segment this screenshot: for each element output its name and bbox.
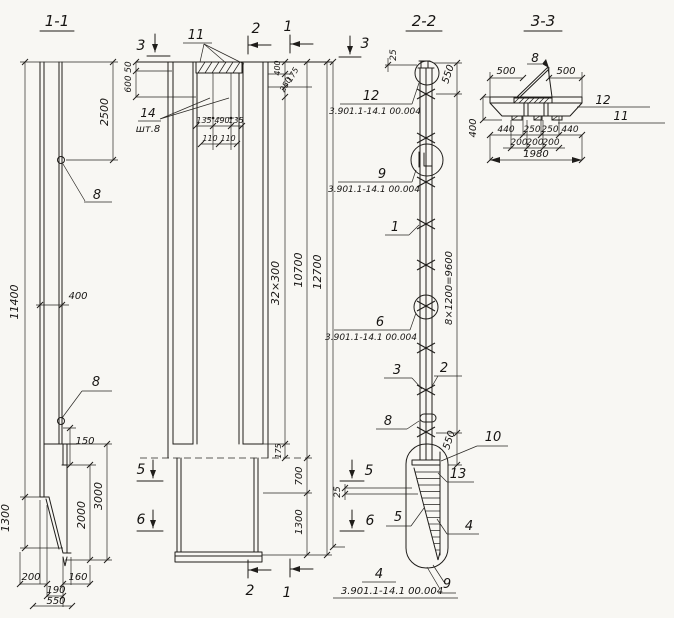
- ref-series-6-label: 3.901.1-14.1 00.004: [325, 333, 417, 343]
- dim-12700-label: 12700: [311, 255, 324, 290]
- callout-6-22-label: 6: [376, 315, 384, 330]
- callout-3-22-label: 3: [393, 363, 401, 378]
- ref-series-12-label: 3.901.1-14.1 00.004: [329, 107, 421, 117]
- callout-11-label: 11: [188, 28, 205, 43]
- dim-1300-tip-label: 1300: [0, 504, 12, 532]
- callout-2-22-label: 2: [440, 361, 448, 376]
- section-mark-3-top-label: 3: [137, 38, 146, 54]
- title-1-1-label: 1-1: [45, 12, 70, 30]
- dim-11400-label: 11400: [8, 285, 21, 320]
- dim-440-left-label: 440: [497, 125, 514, 135]
- ref-series-4-label: 3.901.1-14.1 00.004: [341, 586, 443, 597]
- callout-13-22-label: 13: [450, 467, 467, 482]
- callout-8-22-label: 8: [384, 414, 392, 429]
- callout-9-bottom-label: 9: [443, 577, 451, 592]
- dim-490-label: 490: [214, 116, 229, 125]
- dim-8x1200-label: 8×1200=9600: [444, 251, 455, 325]
- callout-4-22-label: 4: [465, 519, 473, 534]
- dim-135-right-label: 135: [228, 116, 243, 125]
- dim-110-left-label: 110: [202, 134, 217, 143]
- callout-8-33-label: 8: [531, 51, 539, 65]
- paper-background: [0, 0, 674, 618]
- dim-400-head-label: 400: [273, 60, 282, 75]
- dim-150-label: 150: [75, 436, 94, 447]
- dim-200-c-label: 200: [542, 138, 559, 148]
- dim-440-right-label: 440: [561, 125, 578, 135]
- dim-135-left-label: 135: [196, 116, 211, 125]
- title-2-2-label: 2-2: [412, 12, 437, 30]
- dim-1980-label: 1980: [523, 149, 548, 160]
- dim-500-right-label: 500: [556, 66, 575, 77]
- section-mark-2-bottom-label: 2: [246, 583, 255, 599]
- dim-700-label: 700: [294, 466, 305, 485]
- dim-200-toe-label: 200: [21, 572, 40, 583]
- callout-14-qty-label: шт.8: [136, 124, 161, 135]
- callout-12-33-label: 12: [595, 93, 610, 107]
- dim-25-head-label: 25: [389, 49, 399, 61]
- callout-5-22-label: 5: [394, 510, 402, 525]
- dim-175-toe-mid-label: 175: [274, 443, 283, 458]
- dim-200-b-label: 200: [526, 138, 543, 148]
- title-3-3-label: 3-3: [531, 12, 556, 30]
- ref-series-9-label: 3.901.1-14.1 00.004: [328, 185, 420, 195]
- section-mark-5-22-label: 5: [365, 463, 374, 479]
- dim-1300-shaft-label: 1300: [294, 509, 305, 534]
- section-mark-6-left-label: 6: [137, 512, 146, 528]
- dim-190-toe-label: 190: [46, 585, 65, 596]
- callout-12-22-label: 12: [363, 89, 380, 104]
- dim-600-label: 600: [124, 75, 134, 92]
- callout-10-22-label: 10: [485, 430, 502, 445]
- dim-3000-label: 3000: [92, 482, 105, 510]
- dim-110-right-label: 110: [220, 134, 235, 143]
- drawing-canvas: 1-12-23-31140025008400815030002000130020…: [0, 0, 674, 618]
- callout-4-bottom-label: 4: [375, 567, 383, 582]
- dim-500-left-label: 500: [496, 66, 515, 77]
- section-mark-5-left-label: 5: [137, 462, 146, 478]
- dim-200-a-label: 200: [510, 138, 527, 148]
- section-mark-1-top-label: 1: [284, 19, 293, 35]
- drawing-sheet: 1-12-23-31140025008400815030002000130020…: [0, 0, 674, 618]
- dim-25-toe-label: 25: [333, 486, 343, 498]
- dim-2500-label: 2500: [98, 98, 111, 126]
- section-mark-2-top-label: 2: [252, 21, 261, 37]
- callout-8-lower-label: 8: [92, 375, 100, 390]
- dim-400-33-label: 400: [468, 118, 479, 137]
- dim-10700-label: 10700: [292, 253, 305, 288]
- callout-9-22-label: 9: [378, 167, 386, 182]
- section-mark-3-22-label: 3: [361, 36, 370, 52]
- dim-400-shaft-label: 400: [68, 291, 87, 302]
- callout-14-label: 14: [140, 106, 155, 120]
- callout-8-upper-label: 8: [93, 188, 101, 203]
- dim-2000-label: 2000: [75, 501, 88, 529]
- dim-250-right-label: 250: [541, 125, 558, 135]
- section-mark-6-22-label: 6: [366, 513, 375, 529]
- callout-11-33-label: 11: [613, 109, 628, 123]
- dim-250-left-label: 250: [523, 125, 540, 135]
- section-mark-1-bottom-label: 1: [283, 585, 292, 601]
- callout-1-22-label: 1: [391, 220, 399, 235]
- dim-550-toe-label: 550: [46, 596, 65, 607]
- dim-50-label: 50: [124, 61, 134, 73]
- dim-32x300-label: 32×300: [269, 261, 282, 305]
- dim-160-toe-label: 160: [68, 572, 87, 583]
